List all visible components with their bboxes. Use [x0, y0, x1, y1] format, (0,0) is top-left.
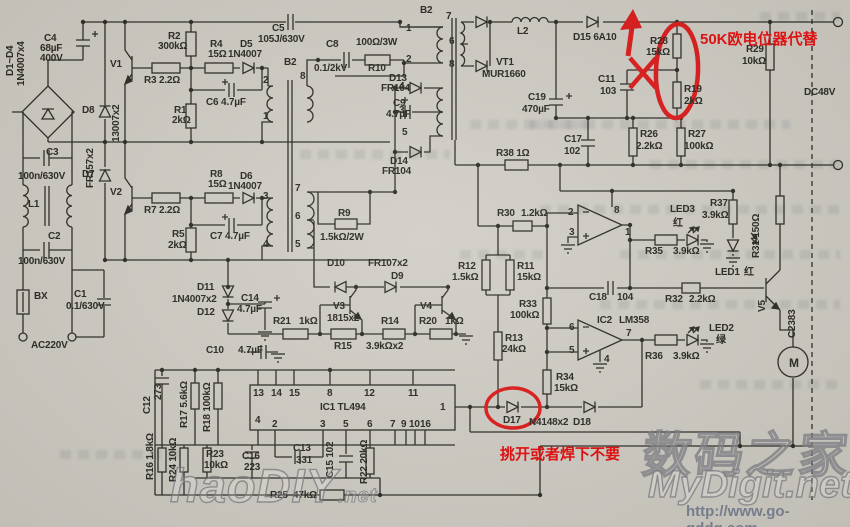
dc-rails [48, 22, 833, 260]
fan-driver [766, 165, 808, 377]
component-label: 8 [449, 60, 454, 70]
component-label: 15kΩ [554, 384, 578, 394]
component-label: N4148x2 [529, 418, 568, 428]
component-label: R28 [650, 37, 668, 47]
component-label: 6 [569, 323, 574, 333]
component-label: C10 [206, 346, 224, 356]
component-label: D9 [391, 272, 403, 282]
component-label: 3.9kΩx2 [366, 342, 403, 352]
component-label: R11 [517, 262, 534, 272]
lm358-block [547, 191, 764, 372]
component-label: 6 [295, 212, 300, 222]
component-label: 2 [568, 208, 573, 218]
component-label: C17 [564, 135, 582, 145]
component-label: 104 [617, 293, 633, 303]
component-label: LED3 [670, 205, 695, 215]
component-label: 6 [449, 37, 454, 47]
component-label: L2 [517, 27, 528, 37]
component-label: R17 5.6kΩ [180, 381, 190, 428]
component-label: 100Ω/3W [356, 38, 397, 48]
component-label: 11 [408, 389, 418, 399]
component-label: 13 [253, 389, 264, 399]
component-label: 1815x2 [327, 314, 359, 324]
schematic-scan-page: D1~D41N4007x4C468µF400VV1R2300kΩR3 2.2ΩR… [0, 0, 850, 527]
component-label: R34 [556, 373, 574, 383]
component-label: 1.2kΩ [521, 209, 547, 219]
component-label: D7 [82, 170, 94, 180]
annotation-replace-pot: 50K欧电位器代替 [700, 28, 818, 49]
component-label: 5 [402, 128, 407, 138]
component-label: 红 [673, 219, 683, 229]
component-label: 7 [390, 420, 395, 430]
component-label: C2 [48, 232, 60, 242]
component-label: 100n/630V [18, 257, 65, 267]
component-label: LM358 [619, 316, 649, 326]
component-label: D11 [197, 283, 214, 293]
watermark-haodiy: haoDIY.net [170, 458, 377, 513]
component-label: LED2 [709, 324, 734, 334]
component-label: 4.7µF [386, 110, 411, 120]
component-label: 1 [406, 24, 411, 34]
output-rectifier-vt1 [476, 17, 487, 72]
component-label: C9 [393, 99, 405, 109]
component-label: 1N4007x2 [172, 295, 217, 305]
component-label: 3 [569, 228, 574, 238]
component-label: C11 [598, 75, 615, 85]
component-label: FR104 [382, 167, 411, 177]
component-label: R19 [684, 85, 702, 95]
component-label: C19 [528, 93, 546, 103]
component-label: V3 [333, 302, 345, 312]
component-label: 4 [255, 416, 260, 426]
component-label: 100kΩ [510, 311, 539, 321]
component-label: C1 [74, 290, 86, 300]
component-label: 15Ω [208, 180, 227, 190]
component-label: 2 [272, 420, 277, 430]
component-label: R15 [334, 342, 352, 352]
arrow-stem [628, 27, 632, 56]
component-label: L1 [28, 200, 39, 210]
watermark-url: http://www.go-gddq.com [686, 503, 850, 527]
component-label: 2kΩ [168, 241, 187, 251]
component-label: 2 [406, 55, 411, 65]
component-label: 2.2kΩ [689, 295, 715, 305]
component-label: R12 [458, 262, 476, 272]
component-label: C12 [143, 396, 153, 414]
component-label: 6 [367, 420, 372, 430]
component-label: R10 [368, 64, 386, 74]
component-label: 400V [40, 54, 63, 64]
component-label: V2 [110, 188, 122, 198]
component-label: R16 1.8kΩ [146, 433, 156, 480]
component-label: 10kΩ [742, 57, 766, 67]
component-label: R3 2.2Ω [144, 76, 180, 86]
component-label: R21 [273, 317, 291, 327]
component-label: 5 [295, 240, 300, 250]
component-label: C2383 [788, 310, 798, 338]
x-mark [630, 58, 656, 88]
component-label: IC1 TL494 [320, 403, 365, 413]
component-label: 4 [604, 355, 609, 365]
component-label: 3 [320, 420, 325, 430]
component-label: 1 [440, 403, 445, 413]
component-label: 1.5kΩ [452, 273, 478, 283]
component-label: 3.9kΩ [673, 247, 699, 257]
led1 [728, 240, 739, 251]
component-label: R33 [519, 300, 537, 310]
component-label: V5 [758, 300, 768, 312]
component-label: 0.1/2kV [314, 64, 347, 74]
component-label: C5 [272, 24, 284, 34]
component-label: 7 [295, 184, 300, 194]
component-label: 2.2kΩ [636, 142, 662, 152]
component-label: R14 [381, 317, 399, 327]
annotation-remove-diode: 挑开或者焊下不要 [500, 443, 620, 464]
component-label: BX [34, 292, 48, 302]
output-terminal-pos [834, 18, 843, 27]
component-label: 9 [401, 420, 406, 430]
component-label: V4 [420, 302, 432, 312]
led3 [687, 235, 698, 246]
drive-transformer [262, 60, 318, 260]
component-label: 273 [154, 384, 164, 400]
component-label: 2kΩ [172, 116, 191, 126]
component-label: 1 [263, 112, 268, 122]
component-label: 14 [271, 389, 282, 399]
component-label: 4.7µF [237, 305, 262, 315]
led2 [687, 335, 698, 346]
component-label: D10 [327, 259, 345, 269]
component-label: 红 [744, 268, 754, 278]
component-label: 8 [300, 72, 305, 82]
component-label: FR107x2 [368, 259, 408, 269]
component-label: D8 [82, 106, 94, 116]
component-label: 15 [289, 389, 300, 399]
component-label: R7 2.2Ω [144, 206, 180, 216]
component-label: R30 [497, 209, 515, 219]
component-label: LED1 [715, 268, 740, 278]
component-label: D12 [197, 308, 215, 318]
component-label: FR104 [381, 84, 410, 94]
component-label: 100n/630V [18, 172, 65, 182]
component-label: 1N4007 [228, 182, 262, 192]
component-label: 12 [364, 389, 375, 399]
component-label: M [789, 357, 799, 369]
component-label: R38 1Ω [496, 149, 530, 159]
component-label: 7 [446, 12, 451, 22]
component-label: 1 [625, 228, 630, 238]
output-choke [512, 18, 548, 23]
component-label: C6 4.7µF [206, 98, 246, 108]
watermark-haodiy-tld: .net [338, 485, 378, 507]
component-label: C3 [46, 148, 58, 158]
component-label: D1~D4 [6, 46, 16, 76]
arrow-head [620, 9, 642, 30]
component-label: D15 6A10 [573, 33, 616, 43]
component-label: 100kΩ [684, 142, 713, 152]
component-label: R37 [710, 199, 728, 209]
component-label: 5 [343, 420, 348, 430]
component-label: VT1 [496, 58, 514, 68]
component-label: 绿 [716, 336, 726, 346]
component-label: R36 [645, 352, 663, 362]
component-label: 8 [327, 389, 332, 399]
component-label: R32 [665, 295, 683, 305]
component-label: AC220V [31, 341, 68, 351]
watermark-mydigit: MyDigit.net [648, 464, 850, 507]
component-label: 4.7µF [238, 346, 263, 356]
component-label: C18 [589, 293, 607, 303]
component-label: D18 [573, 418, 591, 428]
component-label: R26 [640, 130, 658, 140]
watermark-haodiy-text: haoDIY [170, 459, 338, 512]
component-label: 1N4007x4 [17, 41, 27, 86]
component-label: 3 [263, 192, 268, 202]
diode-d15 [587, 17, 598, 28]
component-label: C14 [241, 294, 259, 304]
switch-transistors [125, 22, 152, 260]
component-label: D17 [503, 416, 521, 426]
component-label: 102 [564, 147, 580, 157]
component-label: 300kΩ [158, 42, 187, 52]
component-label: DC48V [804, 88, 835, 98]
component-label: 1kΩ [299, 317, 318, 327]
component-label: 24kΩ [502, 345, 526, 355]
component-label: R13 [505, 334, 523, 344]
component-label: 103 [600, 87, 616, 97]
component-label: 0.1/630V [66, 302, 104, 312]
component-label: R9 [338, 209, 350, 219]
component-label: 10 [409, 420, 420, 430]
component-label: 1N4007 [228, 50, 262, 60]
component-label: 15kΩ [517, 273, 541, 283]
component-label: 3.9kΩ [702, 211, 728, 221]
component-label: R18 100kΩ [203, 382, 213, 432]
component-label: C13 [293, 444, 311, 454]
component-label: 1.5kΩ/2W [320, 233, 364, 243]
component-label: R31 150Ω [752, 214, 762, 258]
component-label: 3.9kΩ [673, 352, 699, 362]
component-label: R27 [688, 130, 706, 140]
component-label: 13007x2 [112, 104, 122, 142]
component-label: MUR1660 [482, 70, 526, 80]
output-terminal-neg [834, 161, 843, 170]
component-label: 16 [420, 420, 431, 430]
component-label: 15kΩ [646, 48, 670, 58]
component-label: V1 [110, 60, 122, 70]
feedback-network [478, 165, 551, 407]
component-label: 2kΩ [684, 97, 703, 107]
component-label: 470µF [522, 105, 550, 115]
component-label: 105J/630V [258, 35, 305, 45]
component-label: IC2 [597, 316, 612, 326]
component-label: R20 [419, 317, 437, 327]
component-label: 7 [626, 329, 631, 339]
component-label: R35 [645, 247, 663, 257]
component-label: 2 [263, 76, 268, 86]
component-label: 5 [569, 346, 574, 356]
component-label: 15Ω [208, 50, 227, 60]
component-label: B2 [420, 6, 432, 16]
component-label: 4 [263, 240, 268, 250]
component-label: C7 4.7µF [210, 232, 250, 242]
component-label: 1kΩ [445, 317, 464, 327]
component-label: C8 [326, 40, 338, 50]
component-label: B2 [284, 58, 296, 68]
component-label: 8 [614, 206, 619, 216]
component-label: R5 [172, 230, 184, 240]
